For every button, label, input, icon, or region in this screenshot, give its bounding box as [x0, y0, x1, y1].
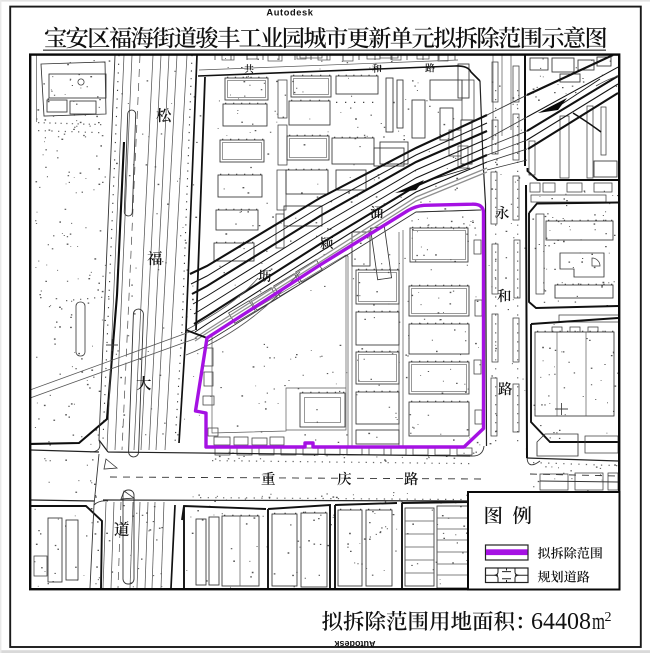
svg-text:Autodesk: Autodesk	[266, 8, 313, 18]
svg-text:Autodesk: Autodesk	[334, 639, 376, 649]
svg-text:2: 2	[605, 610, 612, 625]
svg-text:64408: 64408	[531, 608, 591, 635]
svg-text:m: m	[592, 608, 605, 635]
